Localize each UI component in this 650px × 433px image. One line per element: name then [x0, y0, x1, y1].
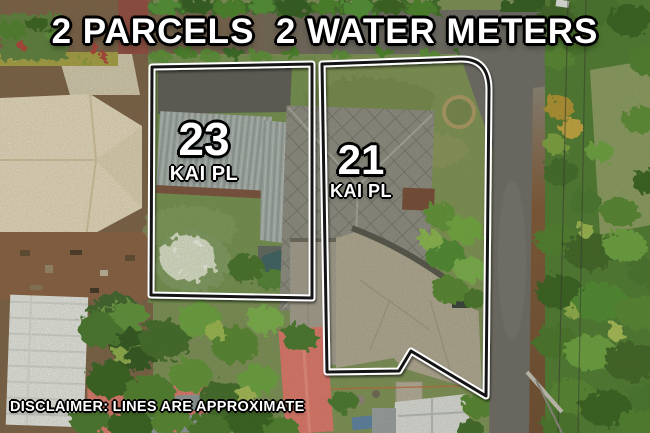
parcel-number: 23	[150, 118, 258, 162]
street-name: KAI PL	[150, 164, 258, 184]
parcel-label-21: 21 KAI PL	[318, 140, 404, 200]
headline: 2 PARCELS 2 WATER METERS	[0, 12, 650, 52]
aerial-photo	[0, 0, 650, 433]
parcel-number: 21	[318, 140, 404, 180]
disclaimer-note: DISCLAIMER: LINES ARE APPROXIMATE	[10, 399, 305, 415]
parcel-label-23: 23 KAI PL	[150, 118, 258, 184]
street-name: KAI PL	[318, 182, 404, 200]
listing-photo-stage: 2 PARCELS 2 WATER METERS 23 KAI PL 21 KA…	[0, 0, 650, 433]
